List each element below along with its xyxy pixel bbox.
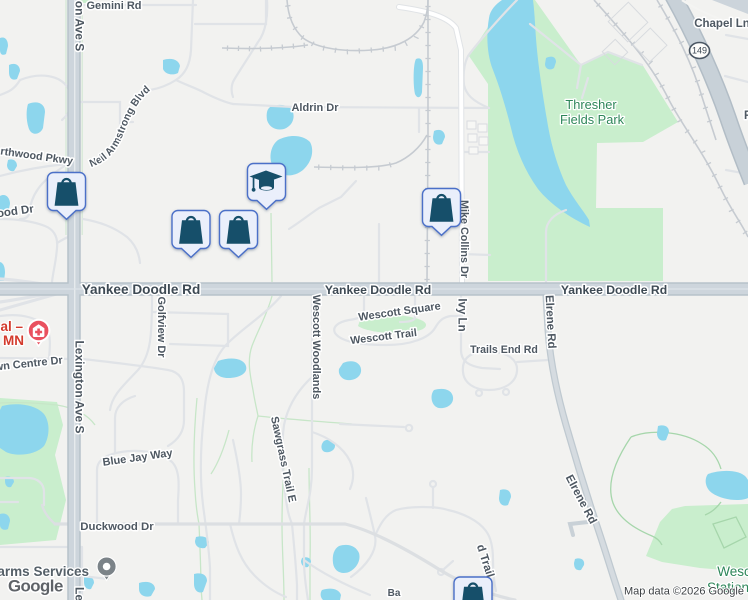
svg-text:Gemini Rd: Gemini Rd <box>86 0 141 12</box>
svg-text:Trails End Rd: Trails End Rd <box>470 344 538 356</box>
svg-text:Wescott Woodlands: Wescott Woodlands <box>310 295 322 400</box>
svg-text:Le: Le <box>73 587 87 600</box>
svg-text:149: 149 <box>692 46 707 56</box>
svg-text:Fields Park: Fields Park <box>560 112 625 127</box>
svg-text:Golfview Dr: Golfview Dr <box>155 296 167 358</box>
svg-text:Google: Google <box>8 577 63 596</box>
svg-text:MN: MN <box>3 333 24 348</box>
svg-text:Map data ©2026 Google: Map data ©2026 Google <box>624 586 744 598</box>
svg-text:Yankee Doodle Rd: Yankee Doodle Rd <box>561 283 667 297</box>
svg-text:Yankee Doodle Rd: Yankee Doodle Rd <box>325 283 431 297</box>
svg-text:al –: al – <box>0 319 23 334</box>
svg-text:Duckwood Dr: Duckwood Dr <box>80 521 154 533</box>
svg-text:Aldrin Dr: Aldrin Dr <box>291 102 339 114</box>
svg-text:Ivy Ln: Ivy Ln <box>456 298 468 331</box>
svg-text:Thresher: Thresher <box>565 97 617 112</box>
svg-text:on Ave S: on Ave S <box>73 1 87 51</box>
svg-text:Lexington Ave S: Lexington Ave S <box>73 340 87 433</box>
svg-text:Yankee Doodle Rd: Yankee Doodle Rd <box>82 282 201 297</box>
svg-text:Wesc: Wesc <box>717 564 748 579</box>
svg-text:R: R <box>744 110 748 122</box>
svg-text:Ba: Ba <box>388 588 401 599</box>
svg-text:Chapel Ln: Chapel Ln <box>694 18 748 30</box>
